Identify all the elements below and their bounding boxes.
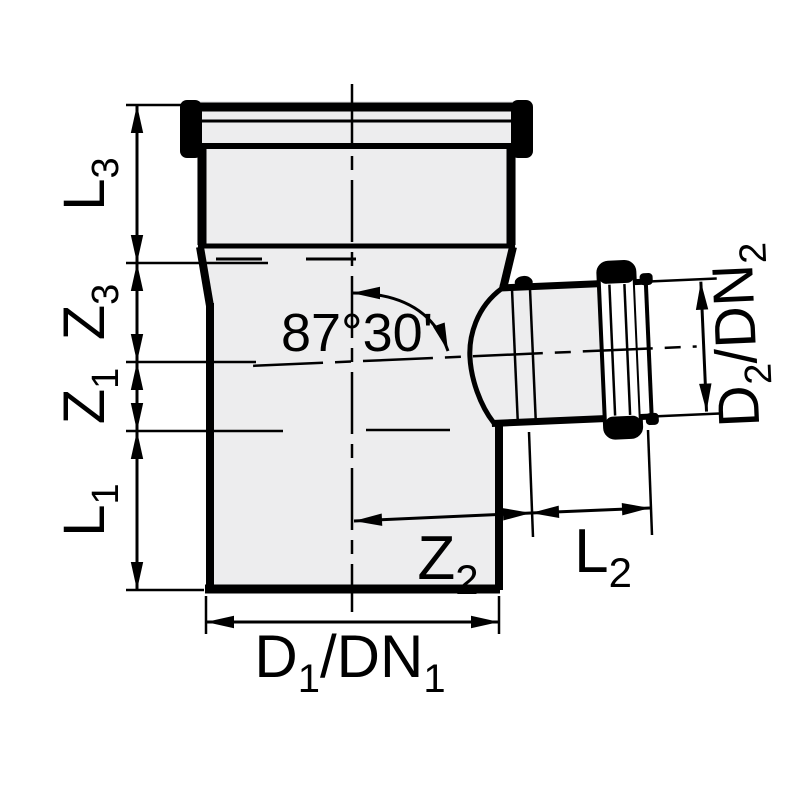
dim-label-d1dn1: D1/DN1 bbox=[254, 623, 445, 701]
angle-annotation: 87°30' bbox=[281, 293, 448, 363]
l2-dimension-line bbox=[531, 508, 650, 513]
mouth-bottom-lip bbox=[646, 413, 660, 426]
dim-label-z1: Z1 bbox=[52, 368, 127, 425]
branch-ring-bottom-cap bbox=[605, 415, 642, 438]
dim-label-l2: L2 bbox=[574, 517, 632, 596]
dim-label-l1: L1 bbox=[52, 483, 127, 536]
mouth-top-lip bbox=[639, 273, 653, 286]
technical-drawing-page: D2/DN2 87°30' L3 Z3 Z1 L1 D1/DN1 bbox=[0, 0, 800, 800]
dim-label-z3: Z3 bbox=[52, 284, 127, 341]
l2-extension-right bbox=[648, 430, 652, 535]
angle-label: 87°30' bbox=[281, 303, 433, 363]
dim-label-l3: L3 bbox=[52, 157, 127, 210]
dim-label-d2dn2: D2/DN2 bbox=[699, 241, 782, 428]
z2-l2-extension bbox=[529, 432, 533, 537]
pipe-fitting-diagram: D2/DN2 87°30' L3 Z3 Z1 L1 D1/DN1 bbox=[0, 0, 800, 800]
branch-ring-top-cap bbox=[598, 262, 635, 285]
